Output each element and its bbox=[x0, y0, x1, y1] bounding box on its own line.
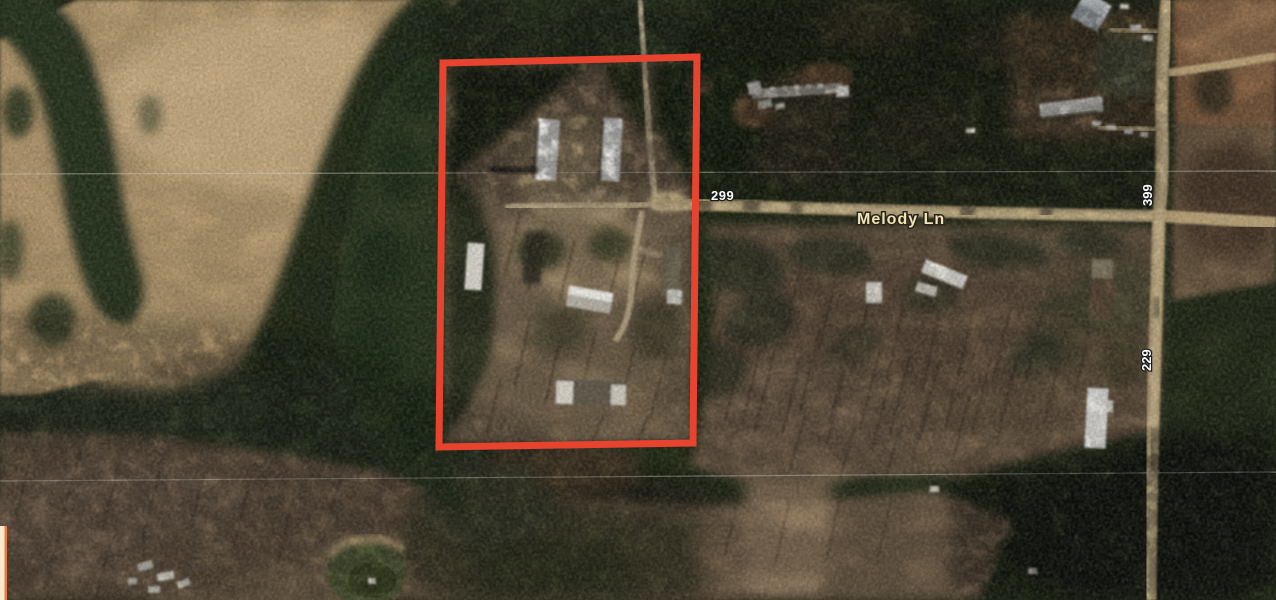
svg-text:299: 299 bbox=[711, 188, 734, 203]
svg-text:399: 399 bbox=[1140, 184, 1155, 206]
svg-text:Melody Ln: Melody Ln bbox=[857, 211, 945, 228]
svg-text:229: 229 bbox=[1139, 349, 1154, 371]
